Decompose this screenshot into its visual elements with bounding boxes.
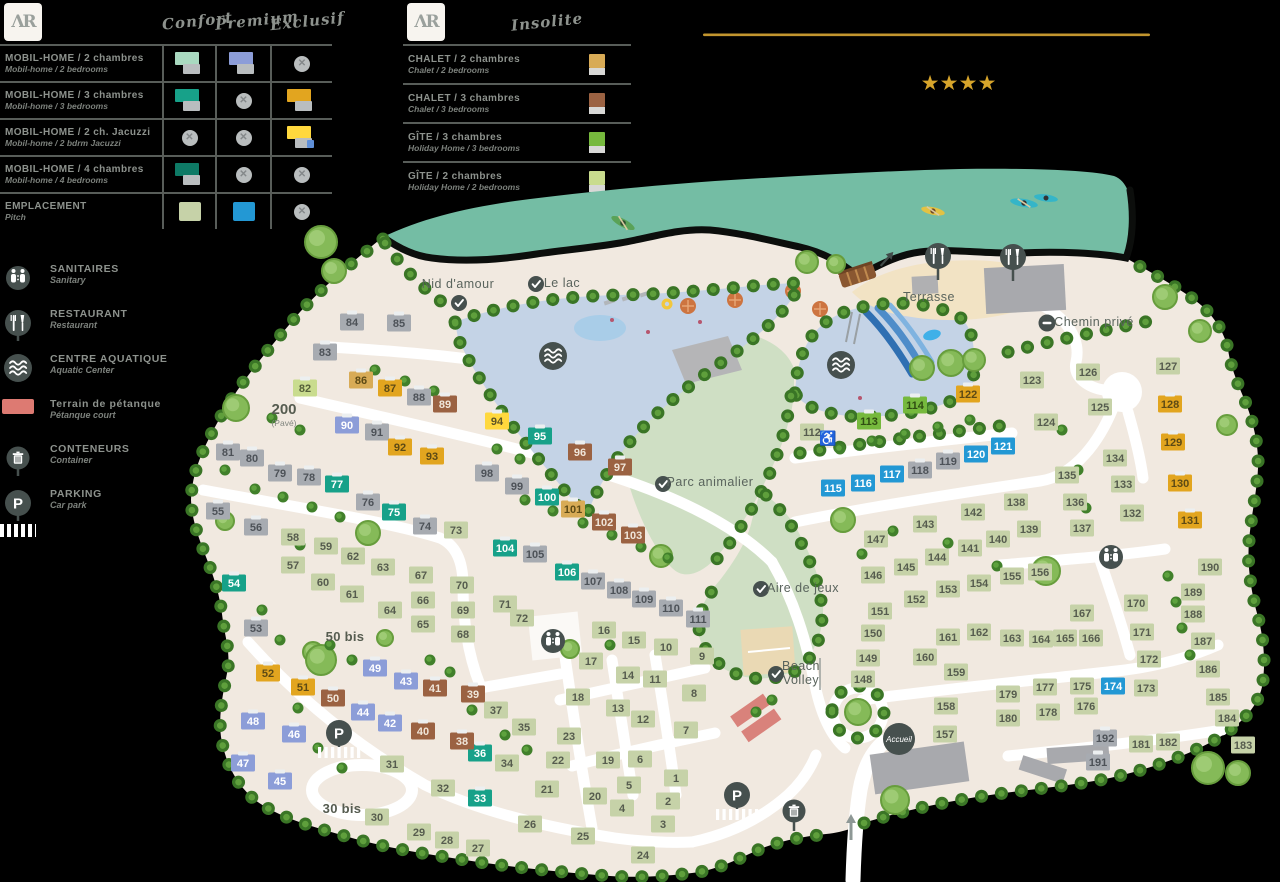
plot-163[interactable]: 163 — [1000, 630, 1024, 647]
plot-158[interactable]: 158 — [934, 698, 958, 715]
plot-172[interactable]: 172 — [1137, 651, 1161, 668]
plot-182[interactable]: 182 — [1156, 734, 1180, 751]
svg-text:15: 15 — [628, 635, 640, 647]
plot-31[interactable]: 31 — [380, 756, 404, 773]
plot-148[interactable]: 148 — [851, 671, 875, 688]
plot-45[interactable]: 45 — [268, 770, 292, 790]
svg-text:8: 8 — [691, 688, 697, 700]
plot-84[interactable]: 84 — [340, 311, 364, 331]
svg-text:139: 139 — [1020, 524, 1038, 536]
plot-166[interactable]: 166 — [1079, 630, 1103, 647]
plot-20[interactable]: 20 — [583, 788, 607, 805]
svg-text:123: 123 — [1023, 375, 1041, 387]
plot-82[interactable]: 82 — [293, 377, 317, 397]
plot-34[interactable]: 34 — [495, 755, 519, 772]
plot-72[interactable]: 72 — [510, 610, 534, 627]
plot-120[interactable]: 120 — [964, 446, 988, 463]
plot-138[interactable]: 138 — [1004, 494, 1028, 511]
svg-text:128: 128 — [1161, 399, 1179, 411]
svg-text:97: 97 — [614, 462, 626, 474]
svg-text:85: 85 — [393, 318, 405, 330]
plot-186[interactable]: 186 — [1196, 661, 1220, 678]
plot-105[interactable]: 105 — [523, 543, 547, 563]
svg-text:98: 98 — [481, 468, 493, 480]
plot-74[interactable]: 74 — [413, 515, 437, 535]
plot-68[interactable]: 68 — [451, 626, 475, 643]
svg-text:190: 190 — [1201, 562, 1219, 574]
plot-121[interactable]: 121 — [991, 438, 1015, 455]
plot-185[interactable]: 185 — [1206, 689, 1230, 706]
plot-54[interactable]: 54 — [222, 572, 246, 592]
svg-text:69: 69 — [457, 605, 469, 617]
plot-106[interactable]: 106 — [555, 561, 579, 581]
plot-170[interactable]: 170 — [1124, 595, 1148, 612]
plot-128[interactable]: 128 — [1158, 393, 1182, 413]
svg-text:101: 101 — [564, 504, 582, 516]
svg-text:133: 133 — [1114, 479, 1132, 491]
plot-6[interactable]: 6 — [628, 751, 652, 768]
plot-140[interactable]: 140 — [986, 531, 1010, 548]
plot-90[interactable]: 90 — [335, 414, 359, 434]
svg-text:118: 118 — [911, 465, 929, 477]
svg-text:138: 138 — [1007, 497, 1025, 509]
svg-text:106: 106 — [558, 567, 576, 579]
plot-130[interactable]: 130 — [1168, 472, 1192, 492]
map-label: Aire de jeux — [767, 581, 839, 595]
svg-text:7: 7 — [683, 725, 689, 737]
plot-30[interactable]: 30 — [365, 809, 389, 826]
plot-92[interactable]: 92 — [388, 436, 412, 456]
plot-190[interactable]: 190 — [1198, 559, 1222, 576]
plot-37[interactable]: 37 — [484, 702, 508, 719]
plot-154[interactable]: 154 — [967, 575, 991, 592]
svg-text:141: 141 — [961, 543, 979, 555]
plot-43[interactable]: 43 — [394, 670, 418, 690]
plot-188[interactable]: 188 — [1181, 606, 1205, 623]
svg-text:88: 88 — [413, 392, 425, 404]
svg-text:2: 2 — [665, 796, 671, 808]
plot-103[interactable]: 103 — [621, 524, 645, 544]
plot-139[interactable]: 139 — [1017, 521, 1041, 538]
svg-text:57: 57 — [287, 560, 299, 572]
svg-text:43: 43 — [400, 676, 412, 688]
plot-55[interactable]: 55 — [206, 500, 230, 520]
plot-13[interactable]: 13 — [606, 700, 630, 717]
svg-text:115: 115 — [824, 483, 842, 495]
plot-142[interactable]: 142 — [961, 504, 985, 521]
plot-85[interactable]: 85 — [387, 312, 411, 332]
svg-text:83: 83 — [319, 347, 331, 359]
svg-text:36: 36 — [474, 748, 486, 760]
svg-text:34: 34 — [501, 758, 514, 770]
plot-191[interactable]: 191 — [1086, 751, 1110, 771]
plot-46[interactable]: 46 — [282, 723, 306, 743]
svg-text:87: 87 — [384, 383, 396, 395]
svg-text:32: 32 — [437, 783, 449, 795]
svg-text:186: 186 — [1199, 664, 1217, 676]
plot-12[interactable]: 12 — [631, 711, 655, 728]
plot-67[interactable]: 67 — [409, 567, 433, 584]
plot-9[interactable]: 9 — [690, 648, 714, 665]
svg-text:157: 157 — [936, 729, 954, 741]
svg-text:44: 44 — [357, 707, 370, 719]
plot-107[interactable]: 107 — [581, 570, 605, 590]
plot-7[interactable]: 7 — [674, 722, 698, 739]
plot-113[interactable]: 113 — [857, 410, 881, 430]
svg-text:71: 71 — [499, 599, 511, 611]
plot-2[interactable]: 2 — [656, 793, 680, 810]
svg-text:187: 187 — [1194, 636, 1212, 648]
plot-19[interactable]: 19 — [596, 752, 620, 769]
plot-156[interactable]: 156 — [1028, 564, 1052, 581]
plot-192[interactable]: 192 — [1093, 727, 1117, 747]
plot-10[interactable]: 10 — [654, 639, 678, 656]
map-label: Beach — [782, 659, 820, 673]
plot-160[interactable]: 160 — [913, 649, 937, 666]
plot-127[interactable]: 127 — [1156, 358, 1180, 375]
plot-122[interactable]: 122 — [956, 383, 980, 403]
svg-text:152: 152 — [907, 594, 925, 606]
svg-text:41: 41 — [429, 683, 441, 695]
svg-text:112: 112 — [803, 427, 821, 439]
plot-58[interactable]: 58 — [281, 529, 305, 546]
plot-116[interactable]: 116 — [851, 475, 875, 492]
svg-text:156: 156 — [1031, 567, 1049, 579]
plot-18[interactable]: 18 — [566, 689, 590, 706]
plot-161[interactable]: 161 — [936, 629, 960, 646]
svg-text:12: 12 — [637, 714, 649, 726]
svg-text:48: 48 — [247, 716, 259, 728]
plot-76[interactable]: 76 — [356, 491, 380, 511]
plot-133[interactable]: 133 — [1111, 476, 1135, 493]
svg-text:113: 113 — [860, 416, 878, 428]
svg-text:155: 155 — [1003, 571, 1021, 583]
svg-text:21: 21 — [541, 784, 553, 796]
plot-80[interactable]: 80 — [240, 447, 264, 467]
svg-text:174: 174 — [1104, 681, 1123, 693]
svg-text:50: 50 — [327, 693, 339, 705]
plot-35[interactable]: 35 — [512, 719, 536, 736]
star-icon: ★ — [978, 72, 997, 95]
plot-143[interactable]: 143 — [913, 516, 937, 533]
svg-text:183: 183 — [1234, 740, 1252, 752]
plot-178[interactable]: 178 — [1036, 704, 1060, 721]
svg-text:79: 79 — [274, 468, 286, 480]
plot-32[interactable]: 32 — [431, 780, 455, 797]
plot-26[interactable]: 26 — [518, 816, 542, 833]
plot-24[interactable]: 24 — [631, 847, 655, 864]
plot-87[interactable]: 87 — [378, 377, 402, 397]
svg-text:110: 110 — [662, 603, 680, 615]
plot-101[interactable]: 101 — [561, 498, 585, 518]
plot-81[interactable]: 81 — [216, 441, 240, 461]
map-label: 50 bis — [326, 629, 365, 644]
svg-text:181: 181 — [1132, 739, 1150, 751]
plot-4[interactable]: 4 — [610, 800, 634, 817]
plot-171[interactable]: 171 — [1130, 624, 1154, 641]
svg-text:177: 177 — [1036, 682, 1054, 694]
plot-77[interactable]: 77 — [325, 473, 349, 493]
plot-33[interactable]: 33 — [468, 787, 492, 807]
plot-62[interactable]: 62 — [341, 548, 365, 565]
svg-text:Accueil: Accueil — [885, 735, 912, 744]
plot-126[interactable]: 126 — [1076, 364, 1100, 381]
plot-83[interactable]: 83 — [313, 341, 337, 361]
plot-15[interactable]: 15 — [622, 632, 646, 649]
svg-text:94: 94 — [491, 416, 504, 428]
svg-text:56: 56 — [250, 522, 262, 534]
plot-155[interactable]: 155 — [1000, 568, 1024, 585]
plot-110[interactable]: 110 — [659, 597, 683, 617]
star-icon: ★ — [921, 72, 940, 95]
plot-146[interactable]: 146 — [861, 567, 885, 584]
plot-16[interactable]: 16 — [592, 622, 616, 639]
svg-text:35: 35 — [518, 722, 530, 734]
plot-51[interactable]: 51 — [291, 676, 315, 696]
svg-text:20: 20 — [589, 791, 601, 803]
plot-150[interactable]: 150 — [861, 625, 885, 642]
plot-117[interactable]: 117 — [880, 466, 904, 483]
plot-63[interactable]: 63 — [371, 559, 395, 576]
plot-176[interactable]: 176 — [1074, 698, 1098, 715]
plot-164[interactable]: 164 — [1029, 631, 1053, 648]
plot-109[interactable]: 109 — [632, 588, 656, 608]
plot-47[interactable]: 47 — [231, 752, 255, 772]
svg-text:73: 73 — [450, 525, 462, 537]
svg-text:135: 135 — [1058, 470, 1076, 482]
plot-99[interactable]: 99 — [505, 475, 529, 495]
plot-41[interactable]: 41 — [423, 677, 447, 697]
svg-text:78: 78 — [303, 472, 315, 484]
svg-text:126: 126 — [1079, 367, 1097, 379]
plot-124[interactable]: 124 — [1034, 414, 1058, 431]
plot-23[interactable]: 23 — [557, 728, 581, 745]
svg-text:131: 131 — [1181, 515, 1199, 527]
plot-29[interactable]: 29 — [407, 824, 431, 841]
svg-text:47: 47 — [237, 758, 249, 770]
plot-162[interactable]: 162 — [967, 624, 991, 641]
noentry-icon — [1039, 315, 1056, 332]
plot-91[interactable]: 91 — [365, 421, 389, 441]
svg-text:148: 148 — [854, 674, 872, 686]
plot-49[interactable]: 49 — [363, 657, 387, 677]
plot-187[interactable]: 187 — [1191, 633, 1215, 650]
svg-text:70: 70 — [456, 580, 468, 592]
plot-50[interactable]: 50 — [321, 687, 345, 707]
svg-text:93: 93 — [426, 451, 438, 463]
svg-text:158: 158 — [937, 701, 955, 713]
svg-text:104: 104 — [496, 543, 515, 555]
plot-153[interactable]: 153 — [936, 581, 960, 598]
plot-25[interactable]: 25 — [571, 828, 595, 845]
plot-57[interactable]: 57 — [281, 557, 305, 574]
svg-text:91: 91 — [371, 427, 383, 439]
svg-text:137: 137 — [1073, 523, 1091, 535]
plot-8[interactable]: 8 — [682, 685, 706, 702]
svg-text:153: 153 — [939, 584, 957, 596]
plot-61[interactable]: 61 — [340, 586, 364, 603]
svg-text:14: 14 — [622, 670, 635, 682]
plot-21[interactable]: 21 — [535, 781, 559, 798]
plot-183[interactable]: 183 — [1231, 737, 1255, 754]
plot-157[interactable]: 157 — [933, 726, 957, 743]
plot-175[interactable]: 175 — [1070, 678, 1094, 695]
plot-98[interactable]: 98 — [475, 462, 499, 482]
svg-text:55: 55 — [212, 506, 224, 518]
plot-53[interactable]: 53 — [244, 617, 268, 637]
plot-89[interactable]: 89 — [433, 393, 457, 413]
plot-184[interactable]: 184 — [1215, 710, 1239, 727]
svg-text:191: 191 — [1089, 757, 1107, 769]
plot-69[interactable]: 69 — [451, 602, 475, 619]
plot-179[interactable]: 179 — [996, 686, 1020, 703]
plot-88[interactable]: 88 — [407, 386, 431, 406]
plot-66[interactable]: 66 — [411, 592, 435, 609]
plot-131[interactable]: 131 — [1178, 509, 1202, 529]
plot-123[interactable]: 123 — [1020, 372, 1044, 389]
svg-text:165: 165 — [1056, 633, 1074, 645]
svg-text:75: 75 — [388, 507, 400, 519]
svg-text:80: 80 — [246, 453, 258, 465]
plot-134[interactable]: 134 — [1103, 450, 1127, 467]
plot-44[interactable]: 44 — [351, 701, 375, 721]
svg-text:52: 52 — [262, 668, 274, 680]
plot-52[interactable]: 52 — [256, 662, 280, 682]
svg-text:189: 189 — [1184, 587, 1202, 599]
svg-text:145: 145 — [897, 562, 915, 574]
svg-text:10: 10 — [660, 642, 672, 654]
plot-70[interactable]: 70 — [450, 577, 474, 594]
svg-text:40: 40 — [417, 726, 429, 738]
svg-text:134: 134 — [1106, 453, 1125, 465]
plot-167[interactable]: 167 — [1070, 605, 1094, 622]
svg-text:61: 61 — [346, 589, 358, 601]
plot-115[interactable]: 115 — [821, 480, 845, 497]
plot-86[interactable]: 86 — [349, 369, 373, 389]
accueil-icon: Accueil — [883, 723, 915, 755]
plot-118[interactable]: 118 — [908, 459, 932, 479]
plot-97[interactable]: 97 — [608, 456, 632, 476]
plot-3[interactable]: 3 — [651, 816, 675, 833]
plot-129[interactable]: 129 — [1161, 431, 1185, 451]
svg-text:164: 164 — [1032, 634, 1051, 646]
plot-149[interactable]: 149 — [856, 650, 880, 667]
svg-text:129: 129 — [1164, 437, 1182, 449]
plot-93[interactable]: 93 — [420, 445, 444, 465]
plot-141[interactable]: 141 — [958, 540, 982, 557]
plot-5[interactable]: 5 — [617, 777, 641, 794]
svg-text:51: 51 — [297, 682, 309, 694]
plot-60[interactable]: 60 — [311, 574, 335, 591]
plot-145[interactable]: 145 — [894, 559, 918, 576]
plot-181[interactable]: 181 — [1129, 736, 1153, 753]
svg-text:159: 159 — [947, 667, 965, 679]
plot-108[interactable]: 108 — [607, 579, 631, 599]
plot-48[interactable]: 48 — [241, 710, 265, 730]
svg-text:26: 26 — [524, 819, 536, 831]
plot-64[interactable]: 64 — [378, 602, 402, 619]
plot-65[interactable]: 65 — [411, 616, 435, 633]
plot-189[interactable]: 189 — [1181, 584, 1205, 601]
waves-icon — [539, 342, 567, 370]
campsite-map-page: ΛR Confort Premium Exclusif MOBIL-HOME /… — [0, 0, 1280, 882]
plot-114[interactable]: 114 — [903, 394, 927, 414]
plot-73[interactable]: 73 — [444, 522, 468, 539]
plot-56[interactable]: 56 — [244, 516, 268, 536]
plot-159[interactable]: 159 — [944, 664, 968, 681]
plot-95[interactable]: 95 — [528, 425, 552, 445]
svg-text:22: 22 — [552, 755, 564, 767]
plot-125[interactable]: 125 — [1088, 399, 1112, 416]
plot-144[interactable]: 144 — [925, 549, 949, 566]
plot-39[interactable]: 39 — [461, 683, 485, 703]
svg-text:117: 117 — [883, 469, 901, 481]
plot-100[interactable]: 100 — [535, 486, 559, 506]
plot-152[interactable]: 152 — [904, 591, 928, 608]
plot-38[interactable]: 38 — [450, 730, 474, 750]
plot-94[interactable]: 94 — [485, 410, 509, 430]
plot-79[interactable]: 79 — [268, 462, 292, 482]
map-label: (Pavé) — [271, 418, 296, 428]
plot-177[interactable]: 177 — [1033, 679, 1057, 696]
svg-text:103: 103 — [624, 530, 642, 542]
plot-147[interactable]: 147 — [864, 531, 888, 548]
plot-137[interactable]: 137 — [1070, 520, 1094, 537]
svg-text:170: 170 — [1127, 598, 1145, 610]
plot-173[interactable]: 173 — [1134, 680, 1158, 697]
plot-59[interactable]: 59 — [314, 538, 338, 555]
plot-151[interactable]: 151 — [868, 603, 892, 620]
plot-135[interactable]: 135 — [1055, 467, 1079, 484]
plot-174[interactable]: 174 — [1101, 678, 1125, 695]
plot-75[interactable]: 75 — [382, 501, 406, 521]
plot-27[interactable]: 27 — [466, 840, 490, 857]
plot-132[interactable]: 132 — [1120, 505, 1144, 522]
plot-14[interactable]: 14 — [616, 667, 640, 684]
plot-17[interactable]: 17 — [579, 653, 603, 670]
svg-text:154: 154 — [970, 578, 989, 590]
plot-102[interactable]: 102 — [592, 511, 616, 531]
plot-180[interactable]: 180 — [996, 710, 1020, 727]
plot-165[interactable]: 165 — [1053, 630, 1077, 647]
svg-text:119: 119 — [939, 456, 957, 468]
svg-text:42: 42 — [384, 718, 396, 730]
plot-22[interactable]: 22 — [546, 752, 570, 769]
plot-40[interactable]: 40 — [411, 720, 435, 740]
svg-text:3: 3 — [660, 819, 666, 831]
plot-104[interactable]: 104 — [493, 537, 517, 557]
svg-text:109: 109 — [635, 594, 653, 606]
plot-136[interactable]: 136 — [1063, 494, 1087, 511]
plot-111[interactable]: 111 — [686, 608, 710, 628]
restaurant-building — [984, 264, 1066, 314]
plot-42[interactable]: 42 — [378, 712, 402, 732]
star-icon: ★ — [959, 72, 978, 95]
plot-119[interactable]: 119 — [936, 450, 960, 470]
plot-1[interactable]: 1 — [664, 770, 688, 787]
plot-96[interactable]: 96 — [568, 441, 592, 461]
svg-text:17: 17 — [585, 656, 597, 668]
svg-text:178: 178 — [1039, 707, 1057, 719]
plot-11[interactable]: 11 — [643, 671, 667, 688]
plot-78[interactable]: 78 — [297, 466, 321, 486]
svg-text:38: 38 — [456, 736, 468, 748]
svg-text:96: 96 — [574, 447, 586, 459]
svg-text:173: 173 — [1137, 683, 1155, 695]
plot-28[interactable]: 28 — [435, 832, 459, 849]
svg-text:102: 102 — [595, 517, 613, 529]
svg-text:4: 4 — [619, 803, 626, 815]
